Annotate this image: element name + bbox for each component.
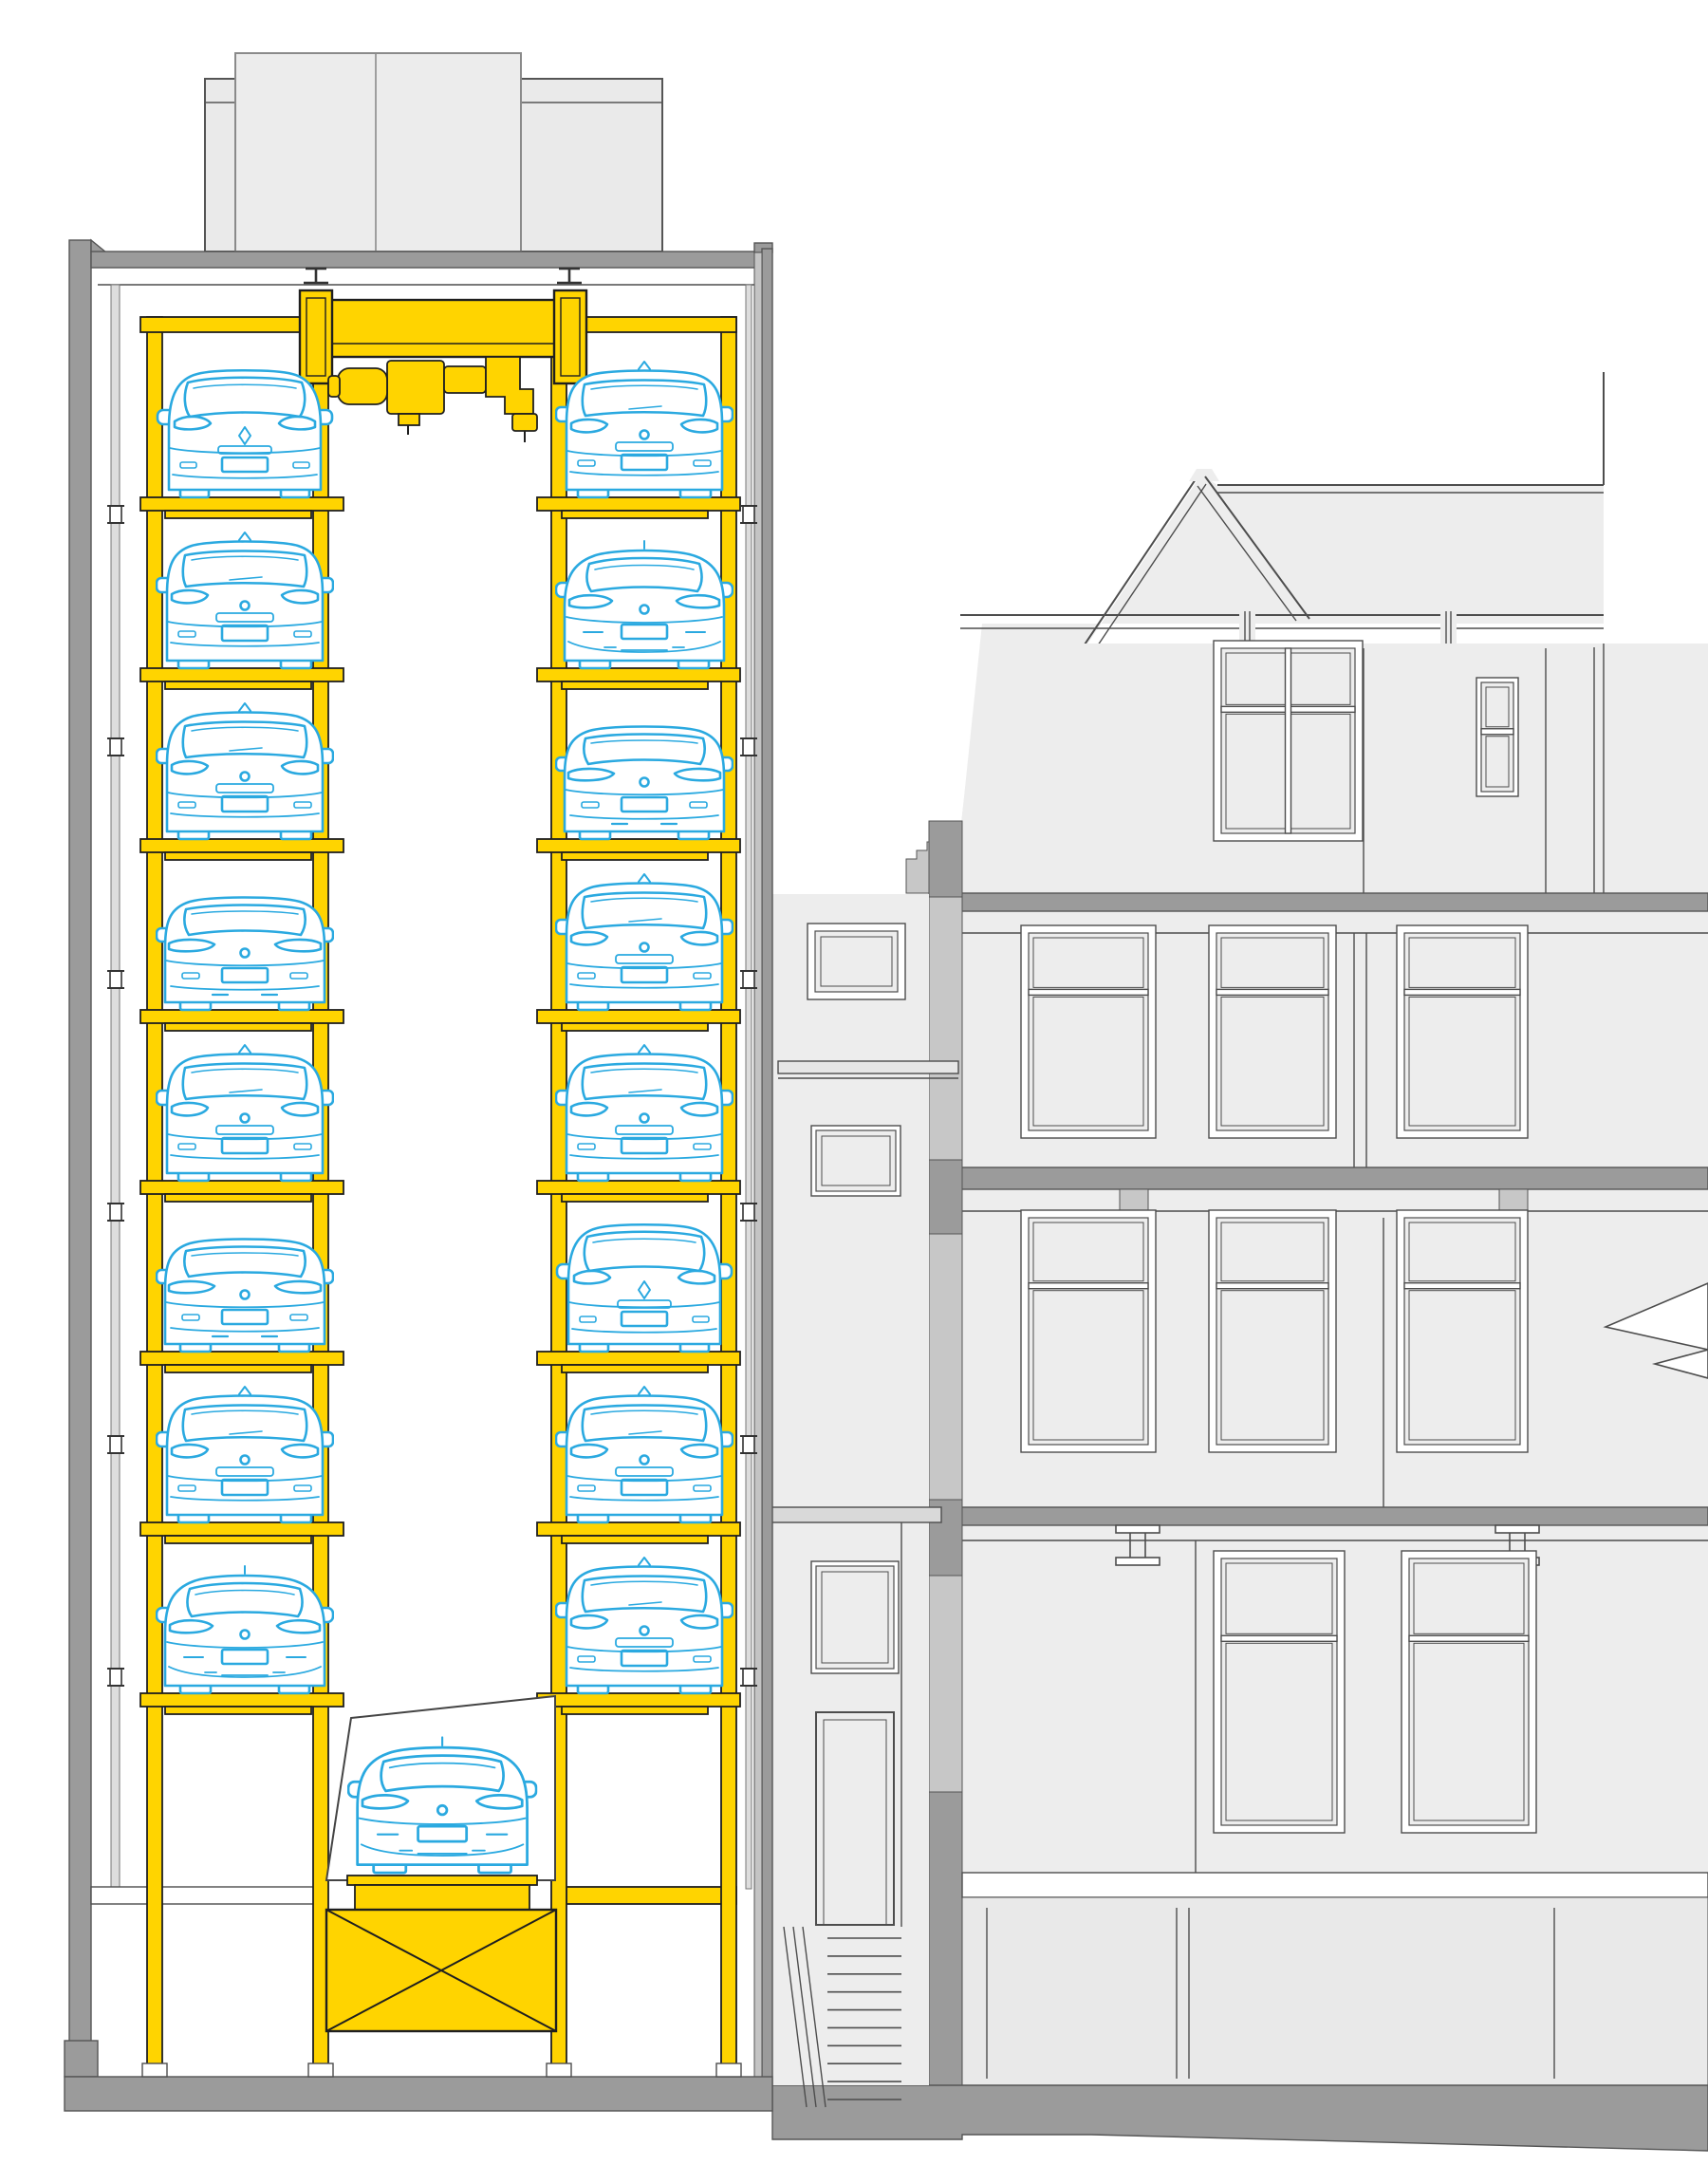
storage-shelf xyxy=(537,668,740,681)
storage-shelf xyxy=(140,839,343,852)
shelf-under-rail xyxy=(165,1536,311,1543)
annex-slab xyxy=(765,1507,941,1522)
rail-bracket-right xyxy=(740,1669,757,1686)
storage-shelf xyxy=(537,497,740,511)
post-footing xyxy=(547,2063,571,2077)
shelf-under-rail xyxy=(562,1194,708,1202)
ground-rail-right xyxy=(566,1887,736,1904)
shelf-under-rail xyxy=(165,1365,311,1372)
storage-shelf xyxy=(537,1352,740,1365)
storage-shelf xyxy=(140,1352,343,1365)
third-floor-window xyxy=(1209,925,1336,1138)
annex-ledge xyxy=(778,1061,958,1073)
second-floor-window xyxy=(1209,1210,1336,1452)
first-floor-window xyxy=(1402,1551,1536,1833)
shelf-under-rail xyxy=(562,681,708,689)
rail-bracket-left xyxy=(107,738,124,756)
shelf-under-rail xyxy=(165,1023,311,1031)
post-footings xyxy=(142,2063,741,2077)
guide-rail-left xyxy=(111,285,120,1889)
automated-parking-tower xyxy=(65,53,772,2111)
rooftop-machinery-boxes xyxy=(205,53,662,252)
parked-car-left-level-3 xyxy=(157,703,333,839)
post-footing xyxy=(142,2063,167,2077)
annex-door xyxy=(816,1712,894,1925)
attic-window xyxy=(1214,641,1363,841)
frame-top-rail-left xyxy=(140,317,306,332)
lift-platform xyxy=(347,1876,537,1885)
entry-car-on-lift xyxy=(348,1737,536,1873)
parked-car-left-level-4 xyxy=(157,898,333,1011)
annex-window xyxy=(811,1561,899,1673)
parked-car-right-level-2 xyxy=(556,541,733,668)
parked-car-left-level-5 xyxy=(157,1045,333,1181)
parked-car-left-level-2 xyxy=(157,532,333,668)
parked-car-right-level-6 xyxy=(557,1224,732,1352)
shelf-under-rail xyxy=(562,1023,708,1031)
storage-shelf xyxy=(140,1693,343,1707)
parked-car-right-level-5 xyxy=(556,1045,733,1181)
tower-left-wall xyxy=(65,240,106,2077)
parked-car-right-level-3 xyxy=(556,727,733,840)
parked-car-left-level-1 xyxy=(158,370,332,497)
storage-shelf xyxy=(140,1522,343,1536)
hoist-trolley xyxy=(328,357,537,442)
storage-shelf xyxy=(537,1181,740,1194)
parked-car-right-level-8 xyxy=(556,1558,733,1693)
storage-shelf xyxy=(140,497,343,511)
shelf-under-rail xyxy=(165,1707,311,1714)
shelf-under-rail xyxy=(562,1707,708,1714)
annex-window xyxy=(808,924,905,999)
shelf-under-rail xyxy=(165,852,311,860)
storage-shelf xyxy=(537,1010,740,1023)
parked-car-left-level-8 xyxy=(157,1566,333,1693)
shelf-under-rail xyxy=(562,1365,708,1372)
shelf-under-rail xyxy=(562,511,708,518)
third-floor-window xyxy=(1397,925,1528,1138)
second-floor-window xyxy=(1397,1210,1528,1452)
rail-bracket-left xyxy=(107,971,124,988)
entry-floor-left xyxy=(91,1887,315,1904)
storage-shelf xyxy=(537,1693,740,1707)
post-footing xyxy=(308,2063,333,2077)
storage-shelf xyxy=(140,668,343,681)
parked-car-right-level-1 xyxy=(556,362,733,497)
rail-bracket-right xyxy=(740,1204,757,1221)
parked-car-right-level-7 xyxy=(556,1387,733,1522)
third-floor-window xyxy=(1021,925,1156,1138)
shelf-under-rail xyxy=(562,1536,708,1543)
rail-bracket-right xyxy=(740,1436,757,1453)
rail-bracket-right xyxy=(740,971,757,988)
residential-building-section xyxy=(765,372,1708,2151)
second-floor-window xyxy=(1021,1210,1156,1452)
roof-hanger-beam xyxy=(304,269,328,283)
shelf-under-rail xyxy=(165,681,311,689)
car-lift xyxy=(326,1876,556,2031)
storage-shelf xyxy=(537,1522,740,1536)
shelf-under-rail xyxy=(165,511,311,518)
first-floor-window xyxy=(1214,1551,1345,1833)
post-footing xyxy=(716,2063,741,2077)
tower-roof-slab xyxy=(91,252,761,268)
scissor-lift xyxy=(326,1910,556,2031)
rail-bracket-right xyxy=(740,506,757,523)
rail-bracket-left xyxy=(107,506,124,523)
shelf-under-rail xyxy=(165,1194,311,1202)
rail-bracket-right xyxy=(740,738,757,756)
pit-slab xyxy=(65,2077,772,2111)
roof-hanger-beam xyxy=(557,269,582,283)
frame-top-rail-right xyxy=(581,317,736,332)
rail-bracket-left xyxy=(107,1204,124,1221)
parking-tower-section-drawing xyxy=(0,0,1708,2165)
parked-car-left-level-7 xyxy=(157,1387,333,1522)
storage-shelf xyxy=(537,839,740,852)
parked-car-left-level-6 xyxy=(157,1240,333,1353)
building-cut-wall xyxy=(929,821,962,2085)
shelf-under-rail xyxy=(562,852,708,860)
annex-window xyxy=(811,1126,900,1196)
guide-rail-right xyxy=(746,285,752,1889)
storage-shelf xyxy=(140,1181,343,1194)
storage-shelf xyxy=(140,1010,343,1023)
parked-car-right-level-4 xyxy=(556,874,733,1010)
rail-bracket-left xyxy=(107,1436,124,1453)
attic-small-window xyxy=(1476,678,1518,796)
overhead-crane-hoist xyxy=(300,290,586,442)
rail-bracket-left xyxy=(107,1669,124,1686)
